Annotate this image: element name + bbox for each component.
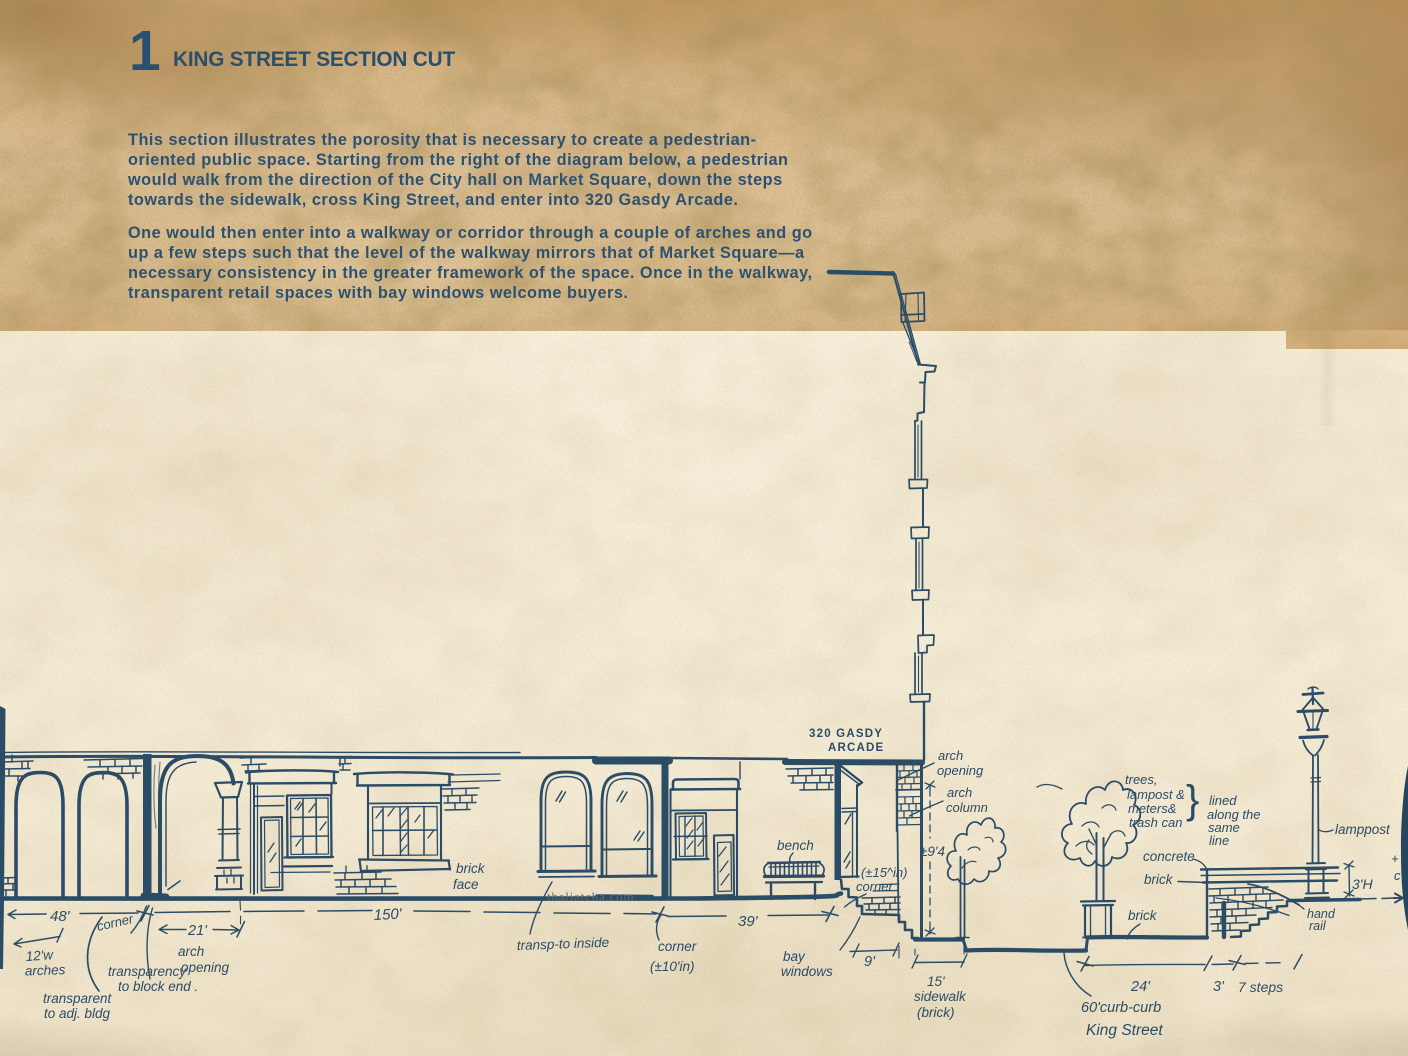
svg-text:arch: arch: [178, 944, 204, 959]
svg-text:12'w: 12'w: [25, 947, 55, 964]
svg-text:rail: rail: [1309, 919, 1327, 933]
svg-text:opening: opening: [937, 763, 984, 778]
svg-text:(±15^in): (±15^in): [861, 865, 907, 880]
svg-text:trees,: trees,: [1125, 772, 1158, 787]
svg-text:lined: lined: [1209, 793, 1237, 808]
svg-text:trash can: trash can: [1129, 815, 1182, 830]
svg-text:c: c: [1394, 868, 1401, 883]
svg-text:face: face: [453, 877, 479, 892]
svg-text:7 steps: 7 steps: [1238, 979, 1283, 995]
svg-text:King Street: King Street: [1086, 1022, 1163, 1039]
svg-text:meters&: meters&: [1128, 801, 1176, 816]
svg-text:brick: brick: [456, 861, 486, 876]
svg-text:±9'4: ±9'4: [920, 844, 945, 859]
svg-text:column: column: [946, 800, 988, 815]
svg-text:24': 24': [1130, 979, 1151, 995]
svg-text:windows: windows: [781, 964, 833, 979]
svg-text:arch: arch: [947, 785, 972, 800]
svg-text:150': 150': [373, 905, 403, 923]
svg-text:transp-to inside: transp-to inside: [517, 935, 610, 953]
svg-text:(brick): (brick): [917, 1005, 955, 1020]
svg-text:opening: opening: [181, 960, 230, 975]
svg-text:320 GASDY: 320 GASDY: [809, 728, 883, 740]
svg-text:3'H: 3'H: [1352, 876, 1373, 892]
svg-text:lamppost: lamppost: [1335, 822, 1391, 837]
svg-text:bay: bay: [783, 949, 806, 964]
svg-text:(±10'in): (±10'in): [650, 959, 695, 974]
svg-text:corner: corner: [95, 911, 135, 934]
svg-text:sidewalk: sidewalk: [914, 989, 967, 1004]
svg-text:15': 15': [927, 974, 945, 989]
svg-text:brick: brick: [1144, 872, 1174, 887]
svg-text:corner: corner: [856, 879, 894, 894]
svg-text:brick: brick: [1128, 908, 1158, 923]
svg-text:bench: bench: [777, 838, 814, 853]
svg-text:arch: arch: [938, 748, 963, 763]
svg-text:60'curb-curb: 60'curb-curb: [1081, 1000, 1161, 1016]
svg-text:9': 9': [864, 954, 876, 970]
svg-text:ARCADE: ARCADE: [828, 742, 884, 754]
svg-text:arches: arches: [25, 962, 66, 978]
svg-text:lampost &: lampost &: [1127, 787, 1185, 802]
svg-text:concrete: concrete: [1143, 849, 1195, 864]
svg-text:line: line: [1209, 833, 1229, 848]
svg-text:3': 3': [1213, 979, 1225, 995]
svg-text:transparent: transparent: [43, 991, 113, 1006]
svg-text:thaliatcha.com: thaliatcha.com: [547, 889, 634, 904]
svg-text:48': 48': [50, 908, 71, 925]
svg-text:39': 39': [738, 913, 759, 930]
svg-text:corner: corner: [658, 939, 697, 954]
svg-text:transparency: transparency: [108, 964, 187, 979]
svg-text:to block end .: to block end .: [118, 979, 198, 994]
svg-text:}: }: [1186, 778, 1199, 822]
svg-text:+: +: [1391, 851, 1399, 866]
svg-text:to adj. bldg: to adj. bldg: [44, 1006, 111, 1021]
svg-text:21': 21': [187, 923, 208, 939]
